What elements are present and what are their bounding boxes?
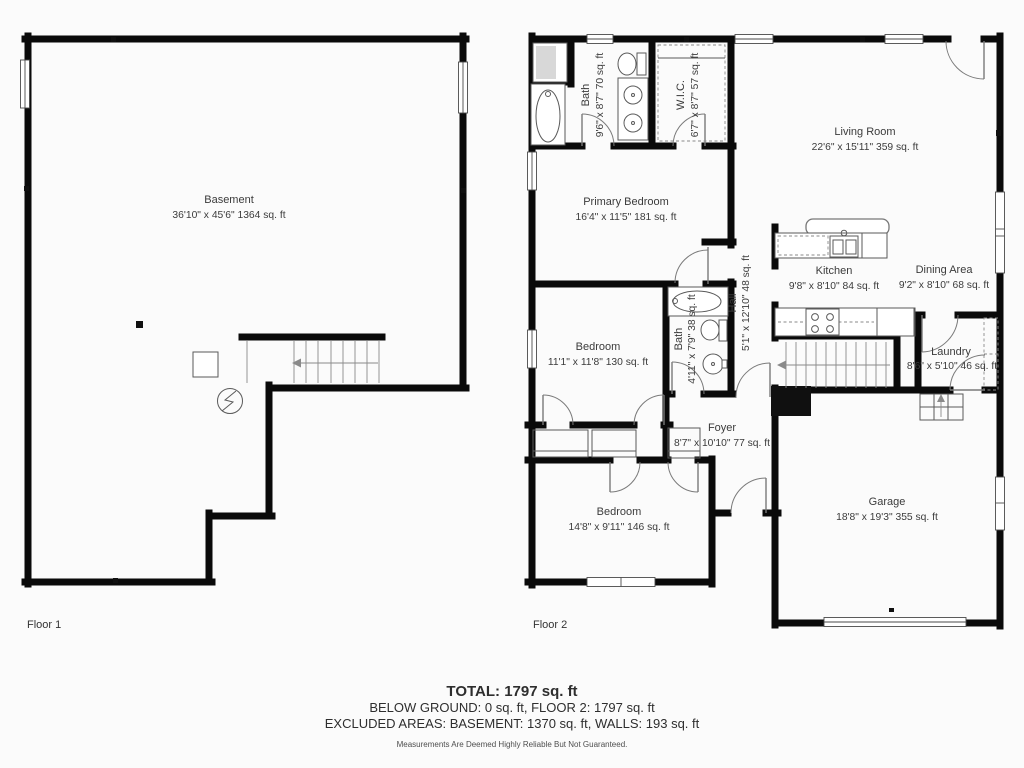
room-dims-bath2: 4'11" x 7'9" 38 sq. ft	[687, 294, 698, 384]
bathtub-fixture	[531, 84, 565, 145]
support-post	[193, 352, 218, 377]
room-label-garage: Garage	[869, 496, 906, 508]
wall-tick	[24, 186, 29, 191]
room-dims-hall: 5'1" x 12'10" 48 sq. ft	[741, 255, 752, 351]
washer-dryer	[984, 318, 998, 390]
room-label-dining: Dining Area	[916, 264, 974, 276]
room-dims-kitchen: 9'8" x 8'10" 84 sq. ft	[789, 281, 879, 292]
shower-fixture	[533, 43, 567, 82]
garage-steps	[920, 394, 963, 420]
room-label-bedroom1: Bedroom	[576, 341, 621, 353]
room-label-hall: Hall	[727, 294, 739, 313]
floor1-walls	[25, 36, 466, 584]
room-label-bedroom2: Bedroom	[597, 506, 642, 518]
floorplan-canvas: Basement 36'10" x 45'6" 1364 sq. ft Floo…	[0, 0, 1024, 672]
floorplan-page: Basement 36'10" x 45'6" 1364 sq. ft Floo…	[0, 0, 1024, 768]
electrical-symbol	[218, 389, 243, 414]
garage-door	[824, 618, 966, 627]
stair-direction-arrow	[777, 361, 786, 370]
room-dims-basement: 36'10" x 45'6" 1364 sq. ft	[172, 210, 285, 221]
floor2-plan: Bath 9'6" x 8'7" 70 sq. ft W.I.C. 6'7" x…	[528, 35, 1005, 632]
staircase	[777, 342, 890, 388]
fridge-fixture	[877, 308, 914, 336]
floor1-label: Floor 1	[27, 619, 61, 631]
wall-tick	[461, 188, 466, 193]
floor2-label: Floor 2	[533, 619, 567, 631]
room-dims-living: 22'6" x 15'11" 359 sq. ft	[812, 142, 919, 153]
room-label-kitchen: Kitchen	[816, 265, 853, 277]
stair-direction-arrow	[937, 394, 945, 402]
room-dims-dining: 9'2" x 8'10" 68 sq. ft	[899, 280, 989, 291]
room-dims-garage: 18'8" x 19'3" 355 sq. ft	[836, 512, 938, 523]
room-label-bath1: Bath	[580, 84, 592, 107]
wall-tick	[111, 37, 116, 42]
room-label-bath2: Bath	[673, 328, 685, 351]
total-area: TOTAL: 1797 sq. ft	[0, 683, 1024, 700]
wall-notch	[771, 386, 811, 416]
staircase	[247, 341, 379, 383]
room-label-primary: Primary Bedroom	[583, 196, 669, 208]
room-dims-bedroom2: 14'8" x 9'11" 146 sq. ft	[569, 522, 670, 533]
room-label-wic: W.I.C.	[675, 80, 687, 110]
wall-tick	[860, 37, 865, 42]
below-ground-line: BELOW GROUND: 0 sq. ft, FLOOR 2: 1797 sq…	[0, 700, 1024, 716]
floor1-plan: Basement 36'10" x 45'6" 1364 sq. ft Floo…	[21, 36, 468, 631]
room-dims-wic: 6'7" x 8'7" 57 sq. ft	[690, 53, 701, 138]
room-dims-primary: 16'4" x 11'5" 181 sq. ft	[576, 212, 677, 223]
wall-tick	[113, 578, 118, 583]
room-label-foyer: Foyer	[708, 422, 736, 434]
summary-block: TOTAL: 1797 sq. ft BELOW GROUND: 0 sq. f…	[0, 683, 1024, 749]
room-dims-bath1: 9'6" x 8'7" 70 sq. ft	[595, 53, 606, 138]
room-dims-laundry: 8'6" x 5'10" 46 sq. ft	[907, 361, 997, 372]
disclaimer-text: Measurements Are Deemed Highly Reliable …	[0, 740, 1024, 749]
wall-tick	[684, 37, 689, 42]
wall-tick	[889, 608, 894, 612]
window	[21, 60, 468, 113]
room-label-living: Living Room	[834, 126, 895, 138]
room-label-laundry: Laundry	[931, 346, 971, 358]
toilet-fixture	[701, 320, 727, 341]
wall-tick	[996, 130, 1001, 136]
toilet-fixture	[618, 53, 646, 75]
room-dims-foyer: 8'7" x 10'10" 77 sq. ft	[674, 438, 770, 449]
floor-marker	[136, 321, 143, 328]
room-label-basement: Basement	[204, 194, 254, 206]
sink-fixture	[703, 354, 727, 374]
excluded-areas-line: EXCLUDED AREAS: BASEMENT: 1370 sq. ft, W…	[0, 716, 1024, 732]
stove-fixture	[806, 309, 839, 335]
room-dims-bedroom1: 11'1" x 11'8" 130 sq. ft	[548, 357, 648, 368]
bathtub-fixture	[668, 287, 728, 316]
kitchen-island	[775, 219, 889, 258]
double-sink-vanity	[618, 78, 648, 140]
stair-direction-arrow	[292, 359, 301, 368]
